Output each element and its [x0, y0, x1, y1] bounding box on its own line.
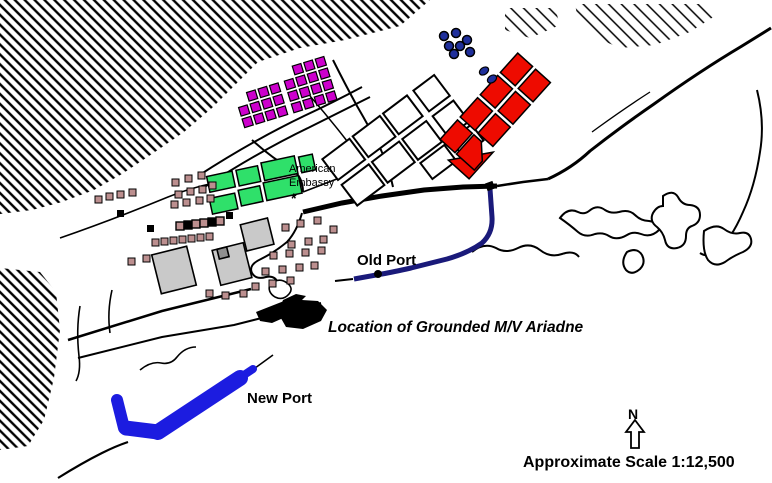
ship-location-label: Location of Grounded M/V Ariadne [328, 319, 584, 336]
brown-building [117, 191, 124, 198]
magenta-block [322, 79, 333, 90]
magenta-block [269, 83, 280, 94]
magenta-block [239, 105, 250, 116]
brown-building [318, 247, 325, 254]
brown-building [297, 220, 304, 227]
magenta-block [284, 78, 295, 89]
brown-building [252, 283, 259, 290]
brown-building [286, 250, 293, 257]
gray-building [240, 218, 274, 251]
magenta-block [265, 109, 276, 120]
brown-building [288, 241, 295, 248]
brown-building [196, 197, 203, 204]
magenta-block [304, 60, 315, 71]
embassy-label-line1: American [289, 163, 335, 175]
map-canvas: American Embassy * Old Port Location of … [0, 0, 772, 483]
magenta-block [247, 90, 258, 101]
row-building [192, 220, 200, 228]
gray-building-annex [217, 247, 229, 259]
magenta-block [314, 94, 325, 105]
map-page: American Embassy * Old Port Location of … [0, 0, 772, 483]
brown-building [188, 235, 195, 242]
brown-building [206, 290, 213, 297]
breakwater-marker-dot [374, 270, 382, 278]
blue-dot-building [452, 29, 461, 38]
brown-building [198, 172, 205, 179]
compass-north-label: N [628, 406, 638, 422]
magenta-block [299, 86, 310, 97]
brown-building [287, 277, 294, 284]
brown-building [128, 258, 135, 265]
magenta-block [296, 75, 307, 86]
scale-label: Approximate Scale 1:12,500 [523, 454, 735, 471]
magenta-block [250, 101, 261, 112]
brown-building [240, 290, 247, 297]
brown-building [183, 199, 190, 206]
embassy-marker: * [291, 190, 297, 206]
brown-building [143, 255, 150, 262]
brown-building [207, 195, 214, 202]
brown-building [175, 191, 182, 198]
magenta-block [303, 98, 314, 109]
brown-building [320, 236, 327, 243]
island-small [623, 250, 643, 273]
row-building [208, 218, 216, 226]
dark-building [117, 210, 124, 217]
brown-building [199, 186, 206, 193]
row-building [184, 221, 192, 229]
row-building [216, 217, 224, 225]
brown-building [279, 266, 286, 273]
magenta-block [273, 94, 284, 105]
blue-dot-building [466, 48, 475, 57]
magenta-block [326, 91, 337, 102]
magenta-block [254, 113, 265, 124]
brown-building [262, 268, 269, 275]
magenta-block [315, 56, 326, 67]
brown-building [222, 292, 229, 299]
magenta-block [292, 64, 303, 75]
blue-dot-building [450, 50, 459, 59]
brown-building [152, 239, 159, 246]
brown-building [187, 188, 194, 195]
magenta-block [276, 106, 287, 117]
brown-building [161, 238, 168, 245]
brown-building [197, 234, 204, 241]
brown-building [172, 179, 179, 186]
magenta-block [258, 86, 269, 97]
row-building [200, 219, 208, 227]
brown-building [170, 237, 177, 244]
magenta-block [242, 116, 253, 127]
magenta-block [311, 83, 322, 94]
brown-building [296, 264, 303, 271]
brown-building [282, 224, 289, 231]
brown-building [305, 238, 312, 245]
magenta-block [288, 90, 299, 101]
brown-building [311, 262, 318, 269]
magenta-block [319, 68, 330, 79]
brown-building [314, 217, 321, 224]
dark-building [226, 212, 233, 219]
blue-dot-building [440, 32, 449, 41]
row-building [176, 222, 184, 230]
blue-dot-building [456, 42, 465, 51]
new-port-label: New Port [247, 390, 312, 407]
magenta-block [307, 71, 318, 82]
brown-building [185, 175, 192, 182]
embassy-label-line2: Embassy [289, 177, 335, 189]
brown-building [209, 182, 216, 189]
magenta-block [261, 98, 272, 109]
brown-building [330, 226, 337, 233]
brown-building [179, 236, 186, 243]
brown-building [270, 252, 277, 259]
green-block [238, 186, 263, 206]
brown-building [129, 189, 136, 196]
brown-building [206, 233, 213, 240]
green-block [236, 166, 261, 186]
brown-building [95, 196, 102, 203]
brown-building [269, 280, 276, 287]
dark-building [147, 225, 154, 232]
new-port-pier-hook [126, 428, 158, 432]
brown-building [171, 201, 178, 208]
brown-building [302, 249, 309, 256]
old-port-label: Old Port [357, 252, 416, 269]
magenta-block [291, 101, 302, 112]
new-port-pier-riser [117, 400, 124, 428]
brown-building [106, 193, 113, 200]
